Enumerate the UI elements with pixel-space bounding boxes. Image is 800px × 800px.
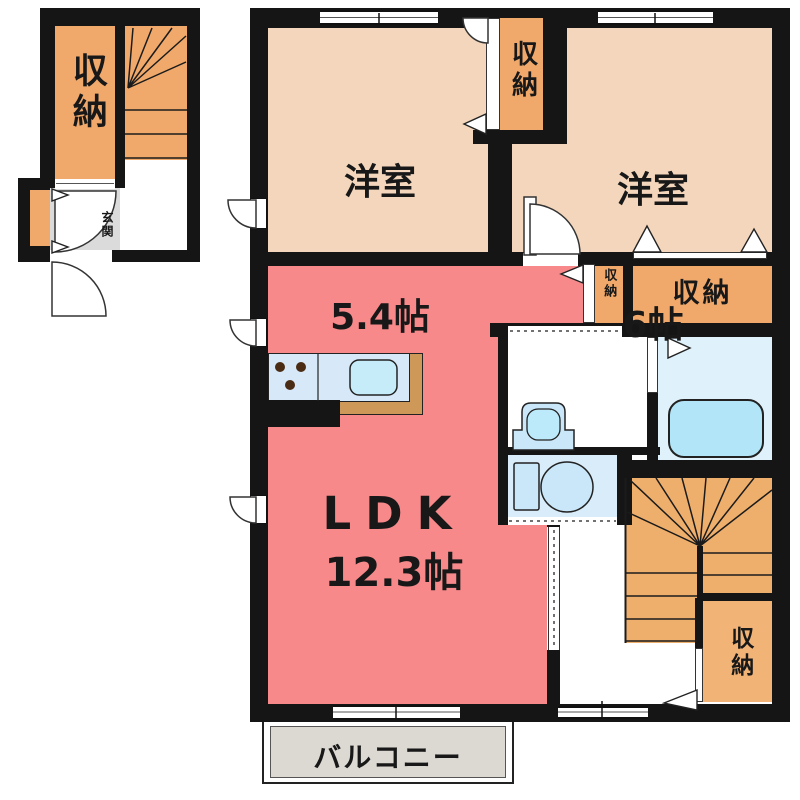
left-window-arc-3 [230,497,256,523]
toilet-icon [514,462,593,512]
western-room-2-label: 洋室 6帖 [558,78,748,438]
balcony-label: バルコニー [272,740,504,775]
storage-br-door-marker [664,690,697,710]
storage-wide-label: 収納 [633,277,772,311]
floorplan: 収納 玄関 洋室 5.4帖 洋室 6帖 LDK 12.3帖 収納 収納 収納 収… [0,0,800,800]
annex-storage-label: 収納 [64,52,108,134]
entrance-label: 玄関 [99,211,114,239]
western-room-1-name: 洋室 [278,160,482,205]
left-window-arc-2 [230,320,256,346]
stair-divider [697,546,703,643]
storage-bottom-right-label: 収納 [725,626,754,680]
western-room-1-label: 洋室 5.4帖 [278,70,482,430]
room1-door-arc [463,18,488,43]
front-door-outside-arc [52,262,106,316]
ldk-size-label: 12.3帖 [278,548,510,598]
annex-staircase-icon [125,28,187,158]
left-window-arc-1 [228,200,256,228]
ldk-label: LDK [288,486,500,542]
western-room-1-size: 5.4帖 [278,295,482,340]
western-room-2-name: 洋室 [558,168,748,213]
storage-narrow-label: 収納 [600,268,616,300]
storage-mid-label: 収納 [506,40,539,102]
